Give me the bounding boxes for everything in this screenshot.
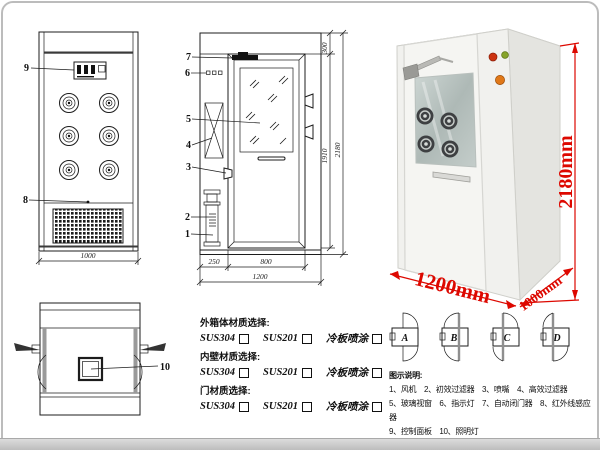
door-option-c: C bbox=[491, 306, 523, 368]
material-options-row: SUS304 SUS201 冷板喷涂 bbox=[200, 365, 385, 380]
part-label-6: 6 bbox=[185, 68, 190, 79]
part-label-7: 7 bbox=[186, 52, 191, 63]
door-option-letter: B bbox=[450, 333, 458, 344]
material-option-label: 冷板喷涂 bbox=[326, 399, 368, 414]
material-option-label: SUS201 bbox=[263, 367, 298, 378]
part-label-1: 1 bbox=[185, 229, 190, 240]
material-selection: 外箱体材质选择: SUS304 SUS201 冷板喷涂 内壁材质选择: SUS3… bbox=[200, 312, 385, 417]
height-dimensions: 300 1910 2180 bbox=[320, 30, 348, 258]
part-label-5: 5 bbox=[186, 114, 191, 125]
part-label-8: 8 bbox=[23, 195, 28, 206]
material-checkbox[interactable] bbox=[372, 334, 382, 344]
material-group-title: 门材质选择: bbox=[200, 383, 385, 397]
plan-view-drawing: 10 bbox=[8, 293, 186, 433]
side-section-drawing: 7 6 5 4 3 2 1 300 1910 2180 bbox=[180, 24, 370, 296]
part-label-3: 3 bbox=[186, 162, 191, 173]
door-option-d: D bbox=[541, 306, 573, 368]
material-checkbox[interactable] bbox=[239, 368, 249, 378]
part-label-9: 9 bbox=[24, 63, 29, 74]
material-checkbox[interactable] bbox=[372, 368, 382, 378]
dim-1910: 1910 bbox=[320, 148, 329, 163]
material-option-label: SUS201 bbox=[263, 401, 298, 412]
door-closer bbox=[232, 55, 258, 60]
part-label-2: 2 bbox=[185, 212, 190, 223]
door-option-letter: C bbox=[504, 333, 511, 344]
material-checkbox[interactable] bbox=[239, 402, 249, 412]
material-checkbox[interactable] bbox=[372, 402, 382, 412]
door-option-b: B bbox=[440, 306, 472, 368]
dim-250: 250 bbox=[208, 257, 220, 266]
dim-800: 800 bbox=[260, 257, 272, 266]
plan-wall-left bbox=[43, 328, 47, 393]
material-options-row: SUS304 SUS201 冷板喷涂 bbox=[200, 399, 385, 414]
part-label-10: 10 bbox=[160, 362, 170, 373]
legend-line: 9、控制面板 10、照明灯 bbox=[389, 425, 594, 439]
door-option-letter: A bbox=[401, 333, 409, 344]
front-elevation-drawing: 9 8 1000 bbox=[15, 24, 175, 274]
legend-title: 图示说明: bbox=[389, 369, 594, 383]
material-option-label: 冷板喷涂 bbox=[326, 331, 368, 346]
legend-line: 5、玻璃视窗 6、指示灯 7、自动闭门器 8、红外线感应器 bbox=[389, 397, 594, 425]
legend-line: 1、风机 2、初效过滤器 3、喷嘴 4、高效过滤器 bbox=[389, 383, 594, 397]
material-group-title: 外箱体材质选择: bbox=[200, 315, 385, 329]
front-width-dim: 1000 bbox=[81, 251, 96, 260]
door-option-a: A bbox=[390, 306, 422, 368]
material-options-row: SUS304 SUS201 冷板喷涂 bbox=[200, 331, 385, 346]
product-photo: 2180mm 1200mm 1000mm bbox=[383, 16, 588, 314]
width-dimensions: 250 800 1200 bbox=[197, 250, 324, 286]
material-option-label: SUS304 bbox=[200, 367, 235, 378]
material-option-label: 冷板喷涂 bbox=[326, 365, 368, 380]
plan-wall-right bbox=[134, 328, 138, 393]
material-checkbox[interactable] bbox=[302, 402, 312, 412]
part-label-4: 4 bbox=[186, 140, 191, 151]
window-bottom-bar bbox=[0, 438, 600, 450]
indicator-light-green bbox=[502, 52, 509, 59]
air-shower-spec-sheet: 9 8 1000 bbox=[0, 0, 600, 450]
legend: 图示说明: 1、风机 2、初效过滤器 3、喷嘴 4、高效过滤器 5、玻璃视窗 6… bbox=[389, 369, 594, 439]
dim-1200: 1200 bbox=[253, 272, 268, 281]
dim-300: 300 bbox=[320, 42, 329, 55]
return-air-grille bbox=[53, 209, 123, 243]
material-option-label: SUS304 bbox=[200, 333, 235, 344]
top-trim-line bbox=[44, 52, 133, 54]
material-checkbox[interactable] bbox=[302, 334, 312, 344]
material-option-label: SUS304 bbox=[200, 401, 235, 412]
material-group-title: 内壁材质选择: bbox=[200, 349, 385, 363]
material-checkbox[interactable] bbox=[239, 334, 249, 344]
material-checkbox[interactable] bbox=[302, 368, 312, 378]
indicator-light-red bbox=[489, 53, 497, 61]
material-option-label: SUS201 bbox=[263, 333, 298, 344]
photo-height-dim: 2180mm bbox=[555, 135, 577, 209]
emergency-button bbox=[495, 75, 504, 84]
dim-2180: 2180 bbox=[333, 142, 342, 157]
